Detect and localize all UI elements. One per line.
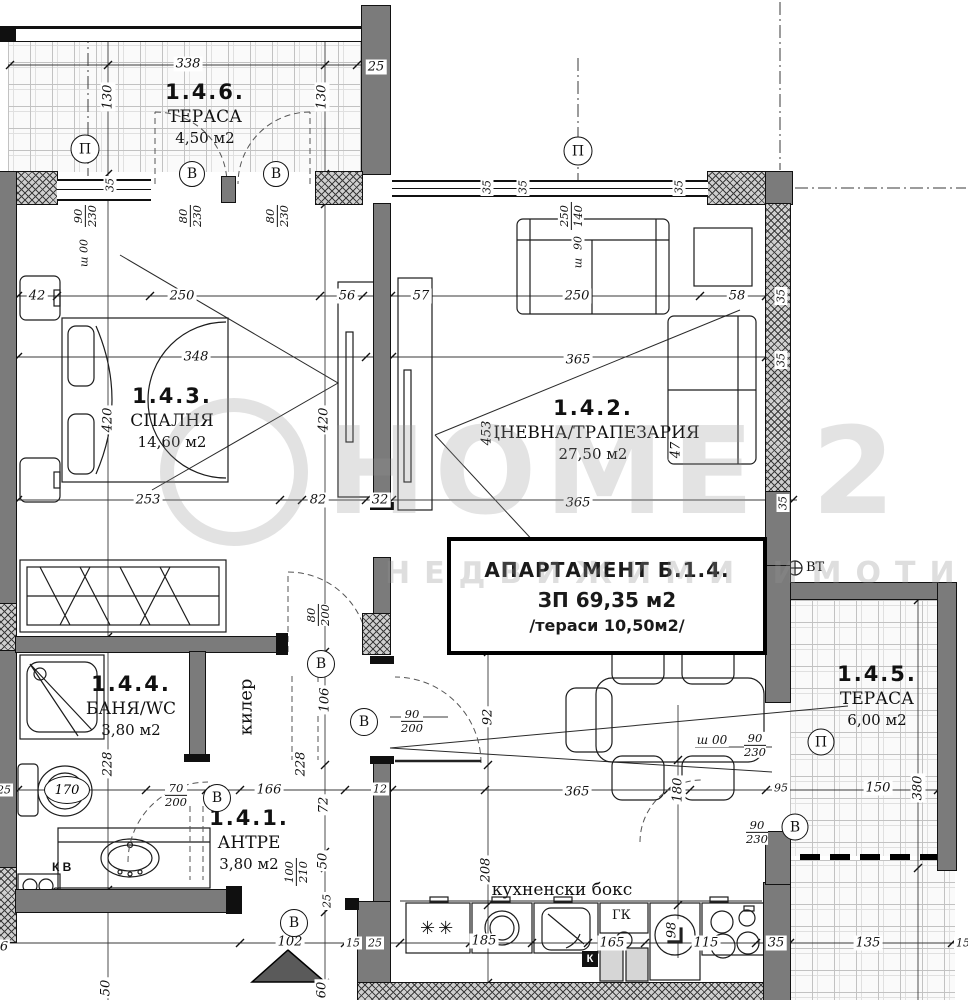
dim-label: 15 [954,937,968,950]
apartment-terrace-area: /тераси 10,50м2/ [451,616,763,635]
axis-marker: П [564,137,593,166]
partition-hatch [363,614,390,654]
dim-width: 80 [177,205,191,227]
dim-label: 365 [563,785,592,800]
wall-terrace-right-side [938,583,956,870]
title-block: АПАРТАМЕНТ Б.1.4. ЗП 69,35 м2 /тераси 10… [447,537,767,655]
kv-label: К В [52,860,71,874]
wall-vanity-cap [226,886,242,914]
wall-terrace-right-left-b [766,832,790,884]
dim-label: 180 [671,776,686,805]
dim-label: 50 [99,978,114,999]
dim-label: 32 [370,493,391,508]
wall-vanity [16,890,238,912]
room-area: 6,00 м2 [837,711,917,729]
dim-label: 135 [854,936,883,951]
dim-label: 35 [481,178,494,196]
room-label-entry: 1.4.1. АНТРЕ 3,80 м2 [209,806,289,873]
partition-mid [374,558,390,614]
axis-marker: В [280,909,308,937]
dim-label: ш 00 [78,237,91,269]
vt-label: ВТ [806,560,824,575]
axis-marker: В [782,814,809,841]
entrance-arrow [252,950,325,982]
dim-label: 228 [294,750,309,779]
dim-label: 365 [564,496,593,511]
dim-label: 90 [572,234,585,252]
dim-height: 230 [86,205,99,227]
room-number: 1.4.3. [130,384,213,408]
dim-height: 230 [746,833,768,846]
toilet-mark: 170 [44,776,90,804]
room-number: 1.4.5. [837,662,917,686]
dim-label: 72 [317,795,332,816]
dim-height: 200 [165,796,187,809]
k-badge: К [582,951,598,967]
dim-label: 365 [564,353,593,368]
dim-label: ш [572,256,585,270]
dim-label: 35 [766,936,787,951]
dim-width: 80 [305,604,319,626]
room-label-bedroom: 1.4.3. СПАЛНЯ 14,60 м2 [130,384,213,451]
dim-label: 166 [255,783,284,798]
wall-top-corner-right [766,172,792,204]
column-top [362,6,390,174]
wall-top-mid [316,172,362,204]
dim-height: 200 [401,722,423,735]
dim-label: 12 [371,783,389,796]
dim-label: 420 [317,406,332,435]
apartment-title: АПАРТАМЕНТ Б.1.4. [451,558,763,582]
dim-label: 25 [0,784,13,797]
room-label-bath: 1.4.4. БАНЯ/WC 3,80 м2 [86,672,176,739]
axis-marker: В [263,161,289,187]
dim-label: 250 [563,289,592,304]
dim-label: 25 [366,937,384,950]
dim-label: 35 [775,351,788,369]
wall-terrace-right-top [788,583,950,599]
dim-label: 35 [104,176,117,194]
dim-height: 210 [297,858,310,886]
floor-plan: АПАРТАМЕНТ Б.1.4. ЗП 69,35 м2 /тераси 10… [0,0,968,1000]
dim-fraction-label: 90230 [72,205,98,227]
axis-marker: П [808,729,835,756]
partition-cap3 [370,756,394,764]
dim-label: 35 [775,287,788,305]
dim-label: ш 00 [695,733,729,747]
gk-label: ГК [612,908,631,923]
wall-right [766,204,790,492]
dim-label: 453 [480,419,495,448]
dim-height: 200 [319,604,332,626]
freezer-symbols: ✳✳ [420,918,456,939]
dim-label: 60 [315,980,330,1000]
dim-label: 47 [669,440,684,461]
dim-width: 90 [401,708,423,722]
dim-label: 228 [101,750,116,779]
dim-height: 230 [278,205,291,227]
axis-marker: В [203,784,231,812]
dim-label: 380 [911,774,926,803]
dim-fraction-label: 80230 [177,205,203,227]
dim-width: 90 [744,732,766,746]
wall-corner-block [0,26,16,42]
room-name: БАНЯ/WC [86,699,176,719]
dim-width: 90 [72,205,86,227]
dim-fraction-label: 80200 [305,604,331,626]
dim-fraction-label: 250140 [558,202,584,230]
room-area: 3,80 м2 [86,721,176,739]
partition-main [374,204,390,504]
dim-fraction-label: 100210 [283,858,309,886]
dim-label: 35 [517,178,530,196]
dim-label: 82 [308,493,329,508]
dim-label: 35 [673,178,686,196]
dim-fraction-label: 70200 [165,782,187,808]
wall-terrace-right-left-a [766,566,790,702]
terrace-top-railing [8,26,369,42]
wall-kitchen-bottom [358,983,768,1000]
room-name: СПАЛНЯ [130,411,213,431]
room-number: 1.4.2. [486,396,699,420]
dim-height: 140 [572,202,585,230]
dim-fraction-label: 90200 [401,708,423,734]
room-number: 1.4.6. [165,80,245,104]
dim-label: 102 [276,935,305,950]
dim-label: 25 [366,60,387,75]
dim-width: 250 [558,202,572,230]
dim-width: 90 [746,819,768,833]
wall-left [0,172,16,942]
dim-width: 100 [283,858,297,886]
room-name: ТЕРАСА [165,107,245,127]
dim-label: 150 [864,781,893,796]
dim-fraction-label: 80230 [264,205,290,227]
dim-label: 208 [479,856,494,885]
room-label-terrace-right: 1.4.5. ТЕРАСА 6,00 м2 [837,662,917,729]
door-post [222,177,235,202]
room-label-terrace-top: 1.4.6. ТЕРАСА 4,50 м2 [165,80,245,147]
wall-bath-closet [190,652,205,756]
dim-label: 115 [692,936,721,951]
dim-fraction-label: 90230 [746,819,768,845]
dim-label: 98 [665,920,680,941]
dim-label: 95 [772,782,790,795]
dim-label: 165 [598,936,627,951]
wall-bath-top [16,637,282,652]
axis-marker: В [307,650,335,678]
living-window-band [392,180,708,197]
dim-height: 230 [744,746,766,759]
dim-label: 50 [316,851,331,872]
dim-width: 80 [264,205,278,227]
dim-label: 130 [101,83,116,112]
room-number: 1.4.4. [86,672,176,696]
dim-fraction-label: 90230 [744,732,766,758]
apartment-built-area: ЗП 69,35 м2 [451,588,763,612]
room-area: 3,80 м2 [209,855,289,873]
dim-label: 56 [337,289,358,304]
wall-kitchen-step [345,898,359,910]
axis-marker: В [350,708,378,736]
dim-label: 253 [134,493,163,508]
room-area: 14,60 м2 [130,433,213,451]
dim-label: 338 [174,57,203,72]
room-name: ТЕРАСА [837,689,917,709]
dim-label: 348 [182,350,211,365]
dim-label: 130 [315,83,330,112]
wall-left-hatch2 [0,868,16,942]
axis-marker: П [71,135,100,164]
wall-left-hatch1 [0,604,16,650]
room-label-kitchen: кухненски бокс [492,880,632,900]
dim-width: 70 [165,782,187,796]
dim-label: 35 [777,494,790,512]
dim-label: 25 [321,892,334,910]
wall-bath-cap [276,633,288,655]
dim-label: 15 [344,937,362,950]
room-name: АНТРЕ [209,833,289,853]
room-area: 4,50 м2 [165,129,245,147]
partition-cap2 [370,656,394,664]
dim-label: 58 [727,289,748,304]
axis-marker: В [179,161,205,187]
dim-label: 6 [0,940,10,955]
dim-label: 57 [411,289,432,304]
dim-label: 106 [318,686,333,715]
wall-closet-cap [184,754,210,762]
room-label-closet: килер [236,679,257,736]
dim-label: 185 [470,934,499,949]
dim-label: 42 [27,289,48,304]
dim-label: 92 [481,707,496,728]
dim-height: 230 [191,205,204,227]
dim-label: 420 [101,406,116,435]
dim-label: 250 [168,289,197,304]
wall-top-right [708,172,766,204]
